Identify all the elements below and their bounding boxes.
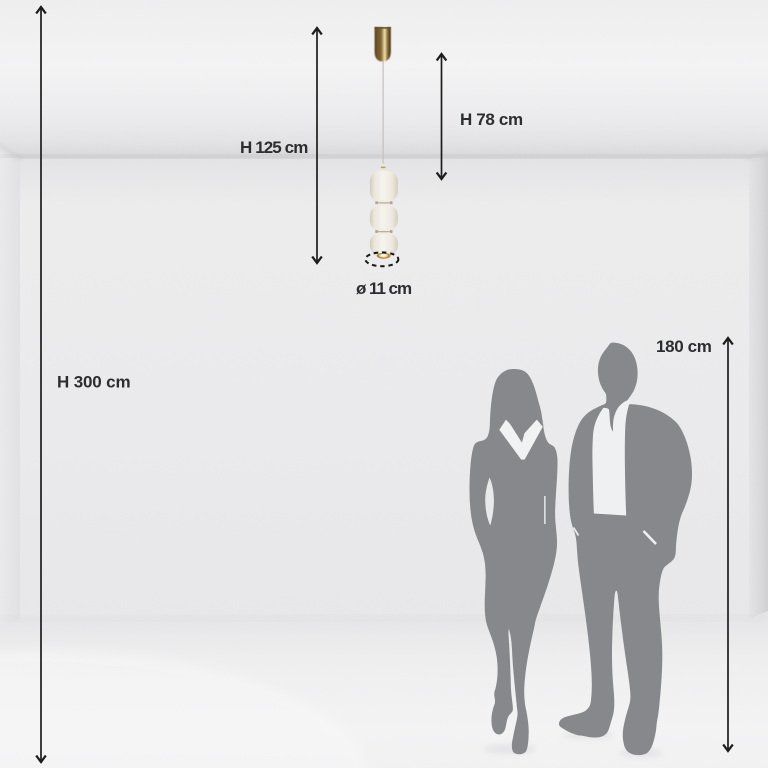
svg-text:H 300 cm: H 300 cm (57, 373, 130, 392)
svg-text:H 78 cm: H 78 cm (460, 110, 523, 129)
svg-text:H 125 cm: H 125 cm (240, 138, 308, 157)
svg-text:ø 11 cm: ø 11 cm (356, 279, 412, 298)
svg-text:180 cm: 180 cm (656, 337, 712, 356)
